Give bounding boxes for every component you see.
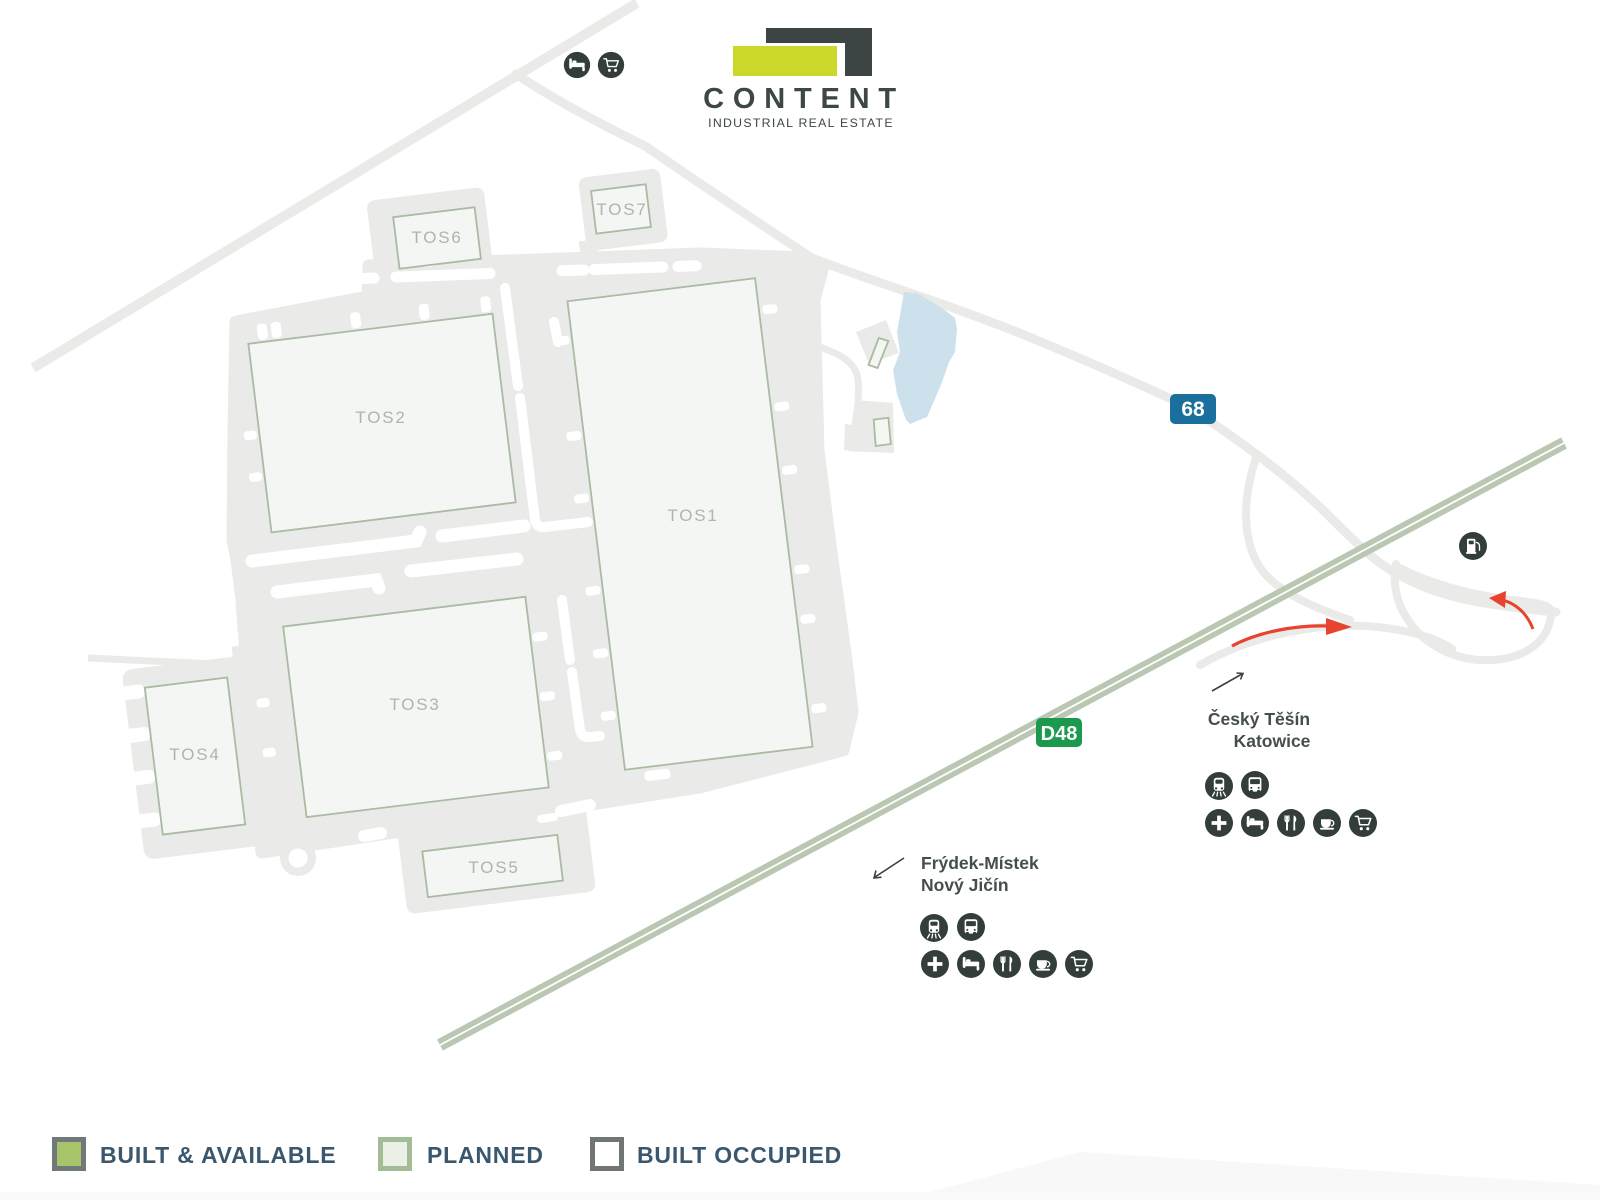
svg-text:BUILT & AVAILABLE: BUILT & AVAILABLE: [100, 1142, 336, 1168]
svg-text:TOS5: TOS5: [468, 858, 519, 877]
svg-text:TOS3: TOS3: [389, 695, 440, 714]
svg-text:Český Těšín: Český Těšín: [1208, 708, 1310, 729]
svg-text:TOS7: TOS7: [596, 200, 647, 219]
svg-text:BUILT OCCUPIED: BUILT OCCUPIED: [637, 1142, 842, 1168]
svg-text:TOS6: TOS6: [411, 228, 462, 247]
svg-text:INDUSTRIAL REAL ESTATE: INDUSTRIAL REAL ESTATE: [708, 116, 894, 130]
svg-text:D48: D48: [1041, 723, 1078, 745]
svg-text:TOS4: TOS4: [169, 745, 220, 764]
svg-text:68: 68: [1181, 398, 1205, 421]
svg-text:CONTENT: CONTENT: [703, 83, 905, 115]
svg-text:PLANNED: PLANNED: [427, 1142, 544, 1168]
svg-text:TOS1: TOS1: [667, 506, 718, 525]
svg-text:Katowice: Katowice: [1234, 731, 1311, 751]
svg-text:Nový Jičín: Nový Jičín: [921, 875, 1009, 895]
svg-text:TOS2: TOS2: [355, 408, 406, 427]
svg-text:Frýdek-Místek: Frýdek-Místek: [921, 853, 1039, 873]
